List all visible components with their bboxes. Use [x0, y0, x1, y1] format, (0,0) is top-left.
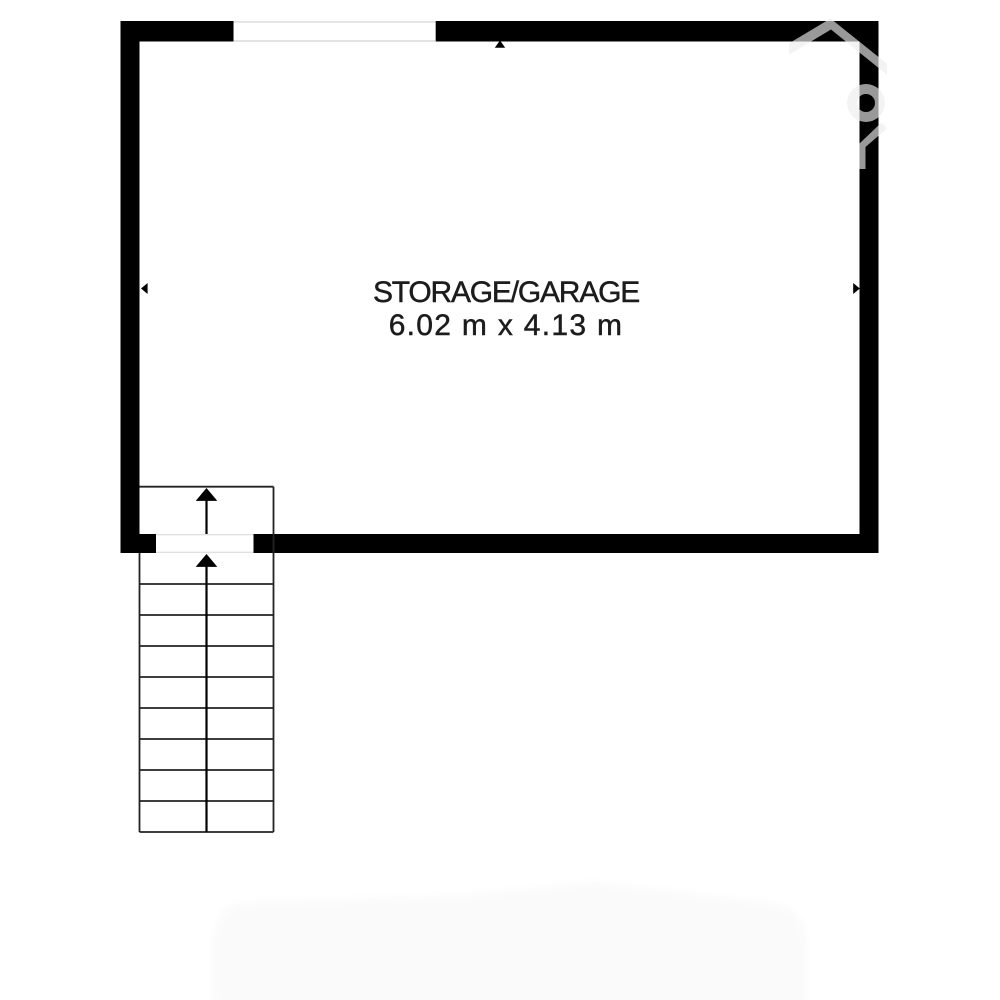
svg-text:6.02 m x 4.13 m: 6.02 m x 4.13 m	[389, 309, 624, 342]
svg-text:STORAGE/GARAGE: STORAGE/GARAGE	[373, 276, 639, 309]
